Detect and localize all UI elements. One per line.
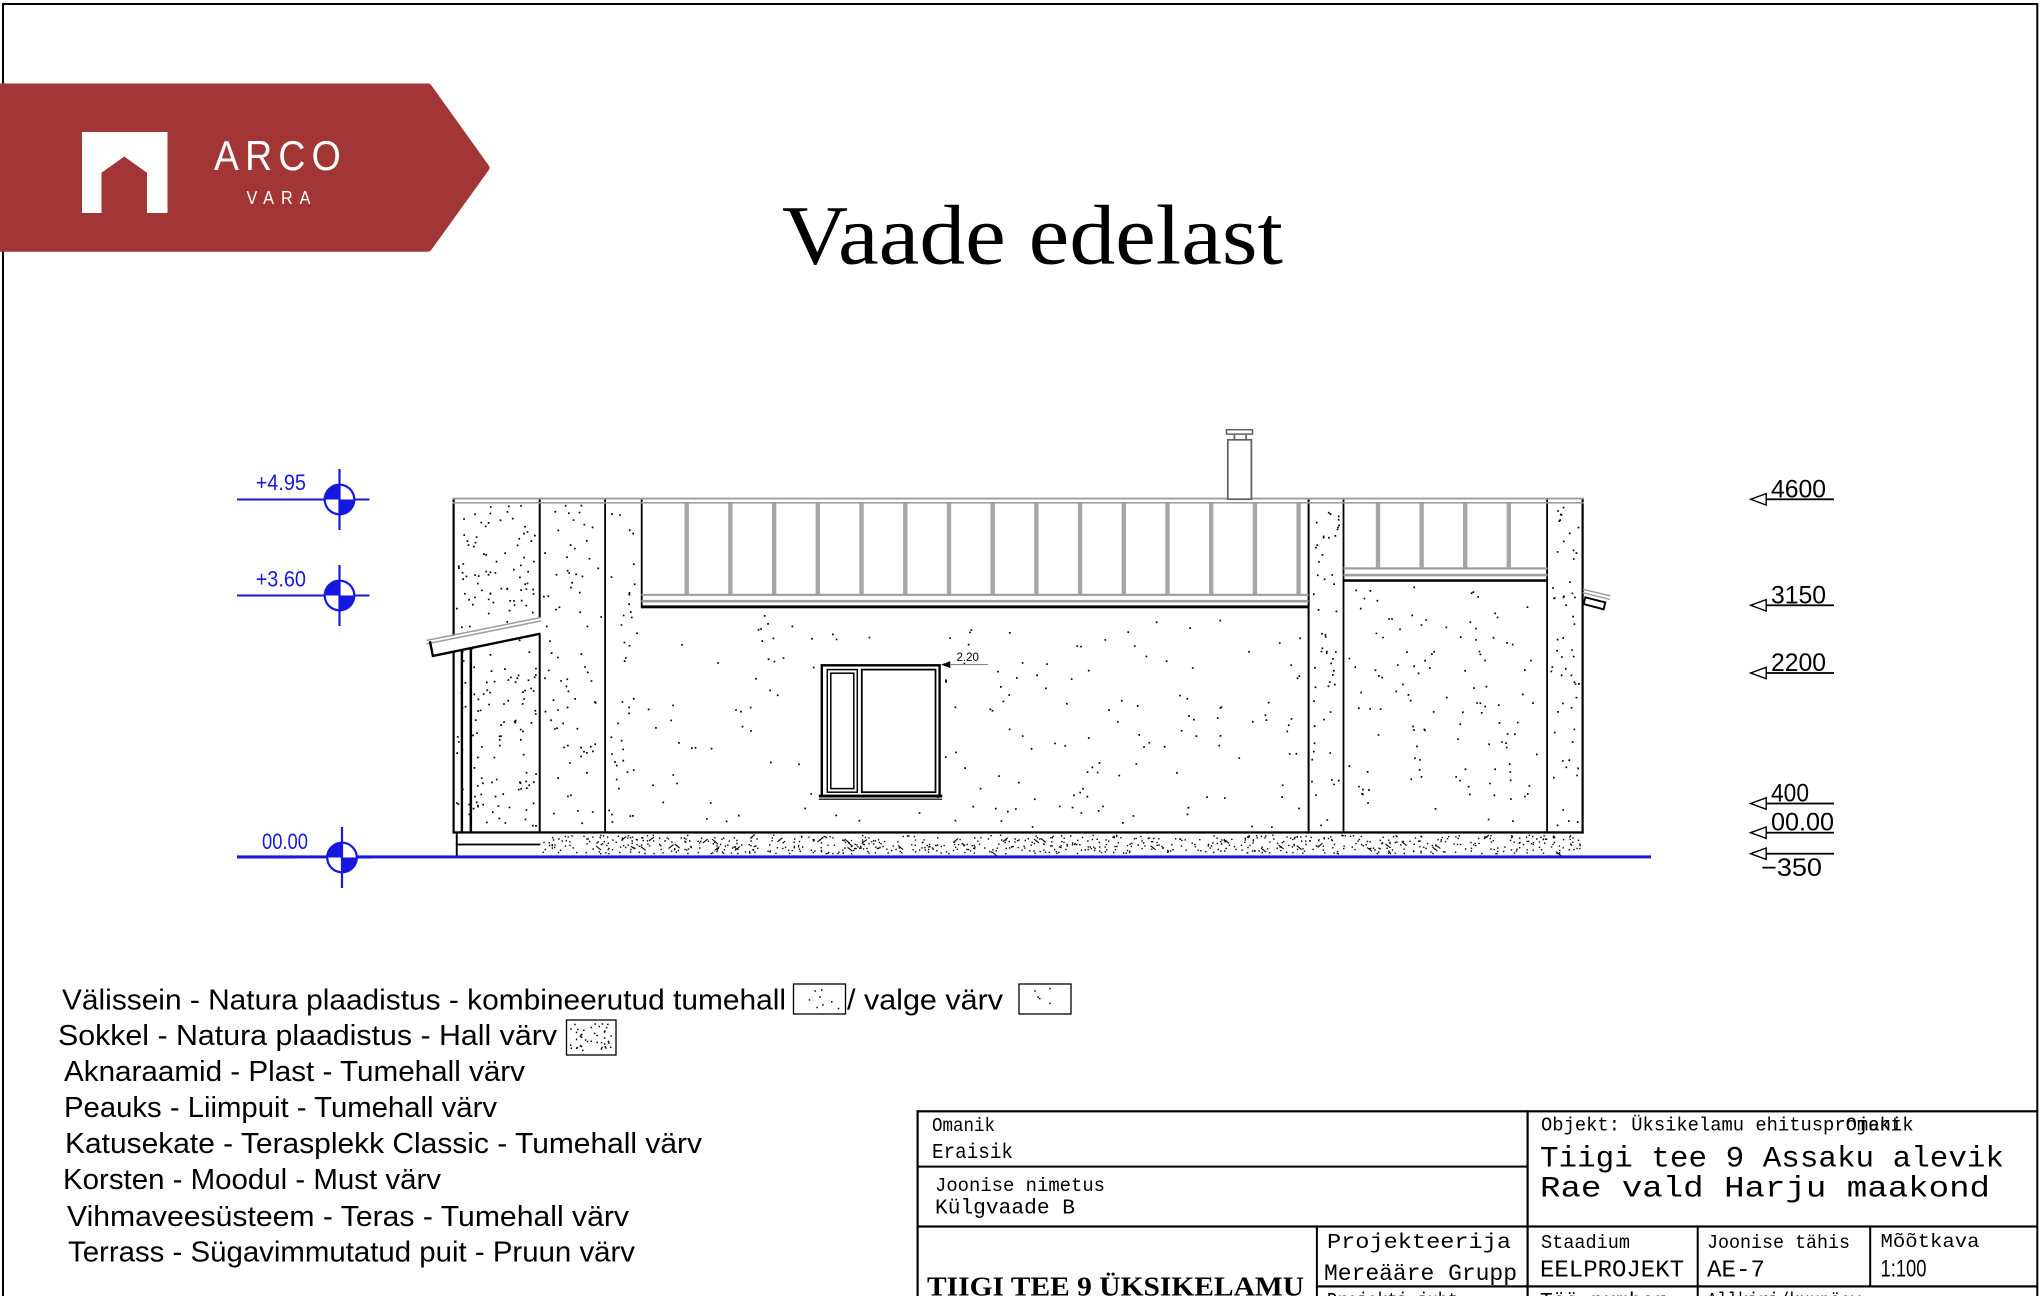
svg-text:4600: 4600 — [1771, 475, 1826, 503]
svg-text:Töö number: Töö number — [1540, 1291, 1667, 1296]
svg-text:Joonise nimetus: Joonise nimetus — [935, 1175, 1105, 1197]
svg-text:Aknaraamid - Plast - Tumehall: Aknaraamid - Plast - Tumehall värv — [64, 1056, 526, 1088]
svg-text:+3.60: +3.60 — [256, 567, 306, 592]
svg-text:Omanik: Omanik — [932, 1115, 995, 1137]
svg-text:Joonise tähis: Joonise tähis — [1707, 1232, 1850, 1254]
svg-text:Staadium: Staadium — [1541, 1232, 1630, 1254]
svg-text:ARCO: ARCO — [214, 132, 347, 179]
svg-text:Allkiri/kuupäev: Allkiri/kuupäev — [1707, 1291, 1861, 1296]
svg-text:Omanik: Omanik — [1846, 1115, 1914, 1137]
svg-text:Projekteerija: Projekteerija — [1327, 1232, 1511, 1255]
svg-text:Projekti juht: Projekti juht — [1327, 1291, 1458, 1296]
svg-text:00.00: 00.00 — [1771, 809, 1834, 837]
svg-text:Mereääre Grupp: Mereääre Grupp — [1324, 1261, 1517, 1287]
svg-text:3150: 3150 — [1771, 581, 1826, 609]
svg-text:Tiigi tee 9 Assaku alevik: Tiigi tee 9 Assaku alevik — [1540, 1143, 2004, 1177]
svg-text:Peauks - Liimpuit - Tumehall v: Peauks - Liimpuit - Tumehall värv — [64, 1092, 498, 1124]
svg-text:Katusekate - Terasplekk Classi: Katusekate - Terasplekk Classic - Tumeha… — [65, 1128, 703, 1160]
svg-text:00.00: 00.00 — [262, 829, 308, 854]
svg-text:Terrass - Sügavimmutatud puit: Terrass - Sügavimmutatud puit - Pruun vä… — [68, 1236, 636, 1268]
svg-text:+4.95: +4.95 — [256, 470, 306, 495]
svg-text:2200: 2200 — [1771, 649, 1826, 677]
svg-text:Rae vald Harju maakond: Rae vald Harju maakond — [1540, 1173, 1990, 1207]
svg-text:EELPROJEKT: EELPROJEKT — [1540, 1258, 1684, 1285]
svg-text:Välissein - Natura plaadistus: Välissein - Natura plaadistus - kombinee… — [62, 984, 786, 1016]
svg-text:Eraisik: Eraisik — [932, 1142, 1013, 1165]
svg-text:VARA: VARA — [247, 187, 318, 208]
svg-text:Vihmaveesüsteem - Teras - Tume: Vihmaveesüsteem - Teras - Tumehall värv — [67, 1201, 630, 1233]
svg-text:/ valge värv: / valge värv — [847, 984, 1004, 1016]
svg-text:Sokkel - Natura plaadistus - H: Sokkel - Natura plaadistus - Hall värv — [58, 1020, 558, 1052]
svg-text:TIIGI TEE 9 ÜKSIKELAMU: TIIGI TEE 9 ÜKSIKELAMU — [927, 1272, 1304, 1296]
svg-text:Mõõtkava: Mõõtkava — [1881, 1231, 1980, 1253]
svg-text:1:100: 1:100 — [1881, 1256, 1927, 1283]
svg-text:−350: −350 — [1761, 854, 1822, 882]
svg-text:Vaade edelast: Vaade edelast — [782, 189, 1283, 283]
svg-text:AE-7: AE-7 — [1707, 1258, 1765, 1285]
svg-text:Külgvaade B: Külgvaade B — [935, 1198, 1075, 1221]
svg-text:Korsten - Moodul - Must värv: Korsten - Moodul - Must värv — [63, 1164, 442, 1196]
svg-text:400: 400 — [1771, 780, 1809, 808]
svg-text:2.20: 2.20 — [957, 652, 979, 664]
